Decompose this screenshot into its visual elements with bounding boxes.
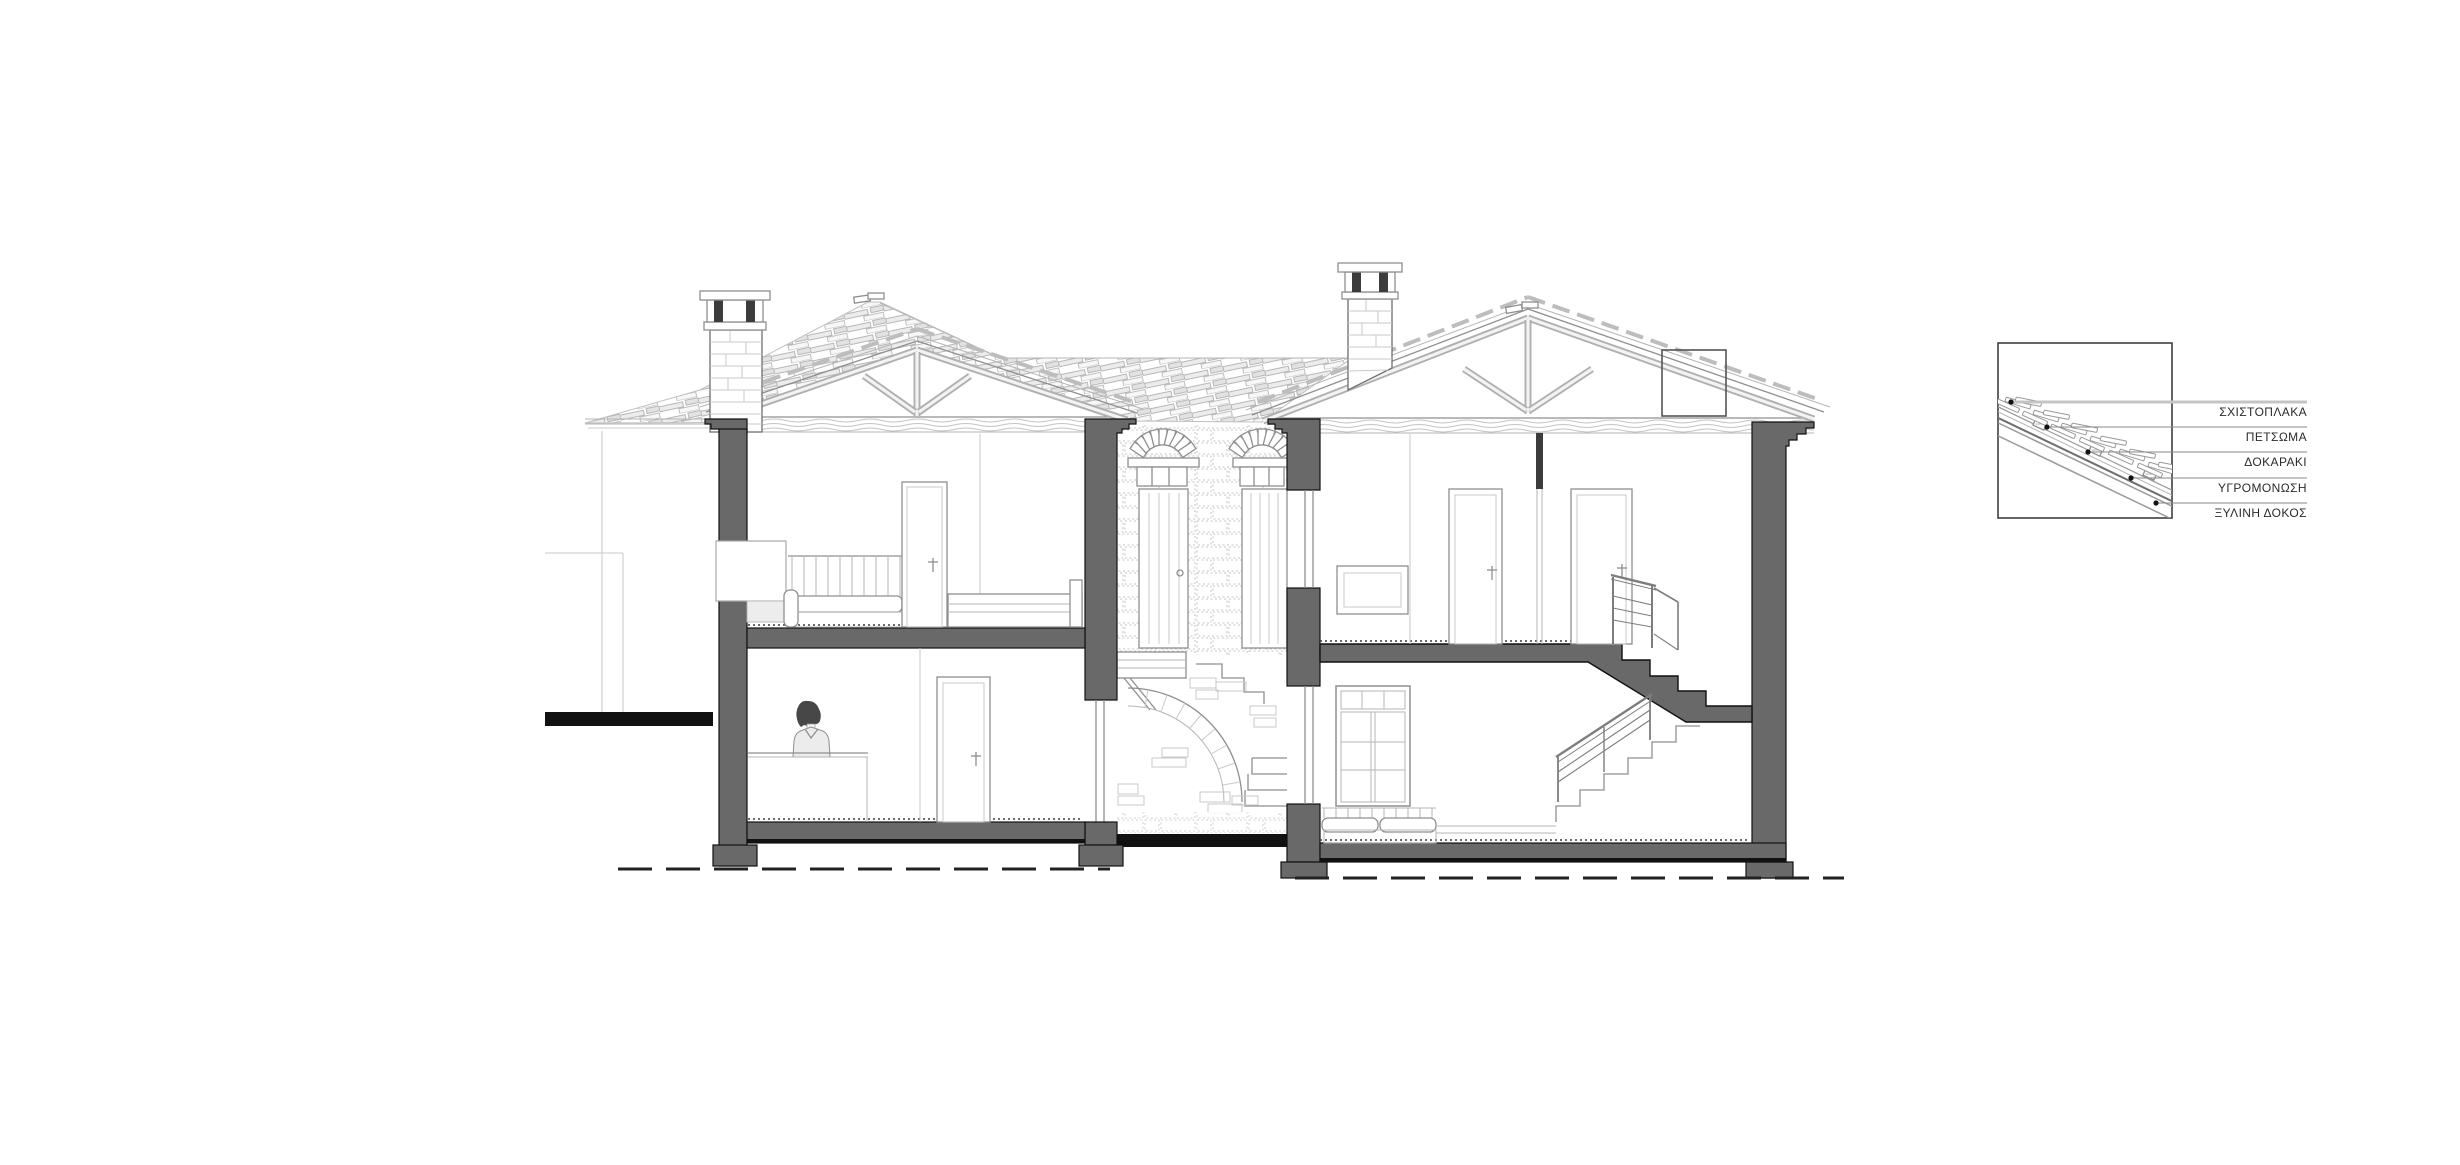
entrance-door-1 xyxy=(1128,429,1199,648)
legend-label-batten: ΔΟΚΑΡΑΚΙ xyxy=(2244,455,2307,469)
sofa-left-upper xyxy=(784,556,902,627)
legend-label-sheathing: ΠΕΤΣΩΜΑ xyxy=(2246,430,2307,444)
cabinet xyxy=(1337,566,1408,614)
left-wall-footing xyxy=(713,845,757,866)
interior-door-right-a xyxy=(1449,489,1502,644)
stairs-lower-right xyxy=(1436,726,1700,833)
left-upper-floor-slab xyxy=(747,628,1085,648)
right-outer-wall xyxy=(1752,422,1814,878)
interior-door-right-b xyxy=(1571,489,1632,644)
left-upper-room xyxy=(784,434,1082,627)
right-building xyxy=(1268,419,1814,878)
stone-arch xyxy=(1128,688,1242,802)
stair-landing xyxy=(1117,652,1186,710)
courtyard-foundation-band xyxy=(1113,834,1290,847)
left-outer-wall xyxy=(719,429,747,866)
roof-detail-legend: ΣΧΙΣΤΟΠΛΑΚΑ ΠΕΤΣΩΜΑ ΔΟΚΑΡΑΚΙ ΥΓΡΟΜΟΝΩΣΗ … xyxy=(1990,343,2307,523)
right-wall-footing xyxy=(1746,862,1793,878)
right-lower-room xyxy=(1322,686,1700,843)
chimney-left xyxy=(700,291,770,432)
architectural-section-sheet: ΣΧΙΣΤΟΠΛΑΚΑ ΠΕΤΣΩΜΑ ΔΟΚΑΡΑΚΙ ΥΓΡΟΜΟΝΩΣΗ … xyxy=(0,0,2460,1165)
ceiling-joist-band-right xyxy=(1263,418,1815,433)
left-building xyxy=(705,419,1136,866)
legend-item-beam: ΞΥΛΙΝΗ ΔΟΚΟΣ xyxy=(2153,500,2307,520)
legend-label-beam: ΞΥΛΙΝΗ ΔΟΚΟΣ xyxy=(2214,506,2307,520)
window-lower-right xyxy=(1336,686,1410,806)
inner-pier-footing xyxy=(1079,845,1123,866)
exterior-stairs xyxy=(1196,664,1287,806)
person-figure xyxy=(793,701,830,757)
left-ground-band xyxy=(545,712,713,726)
interior-door-upper-left xyxy=(902,482,947,627)
right-pier-footing xyxy=(1281,862,1327,878)
legend-label-slate: ΣΧΙΣΤΟΠΛΑΚΑ xyxy=(2219,405,2307,419)
architectural-section-drawing: ΣΧΙΣΤΟΠΛΑΚΑ ΠΕΤΣΩΜΑ ΔΟΚΑΡΑΚΙ ΥΓΡΟΜΟΝΩΣΗ … xyxy=(0,0,2460,1165)
partition-post-section xyxy=(1536,433,1543,489)
right-upper-room xyxy=(1337,433,1678,650)
sofa-lower-right xyxy=(1322,808,1436,843)
left-lower-room xyxy=(748,648,990,822)
courtyard-facade xyxy=(1113,425,1295,847)
interior-door-lower-left xyxy=(937,677,990,822)
bed xyxy=(948,580,1082,627)
background-context-left xyxy=(545,431,713,726)
legend-label-waterproofing: ΥΓΡΟΜΟΝΩΣΗ xyxy=(2218,481,2307,495)
counter xyxy=(748,753,868,822)
ground-lines xyxy=(618,869,1844,878)
stone-patches xyxy=(1118,678,1276,813)
